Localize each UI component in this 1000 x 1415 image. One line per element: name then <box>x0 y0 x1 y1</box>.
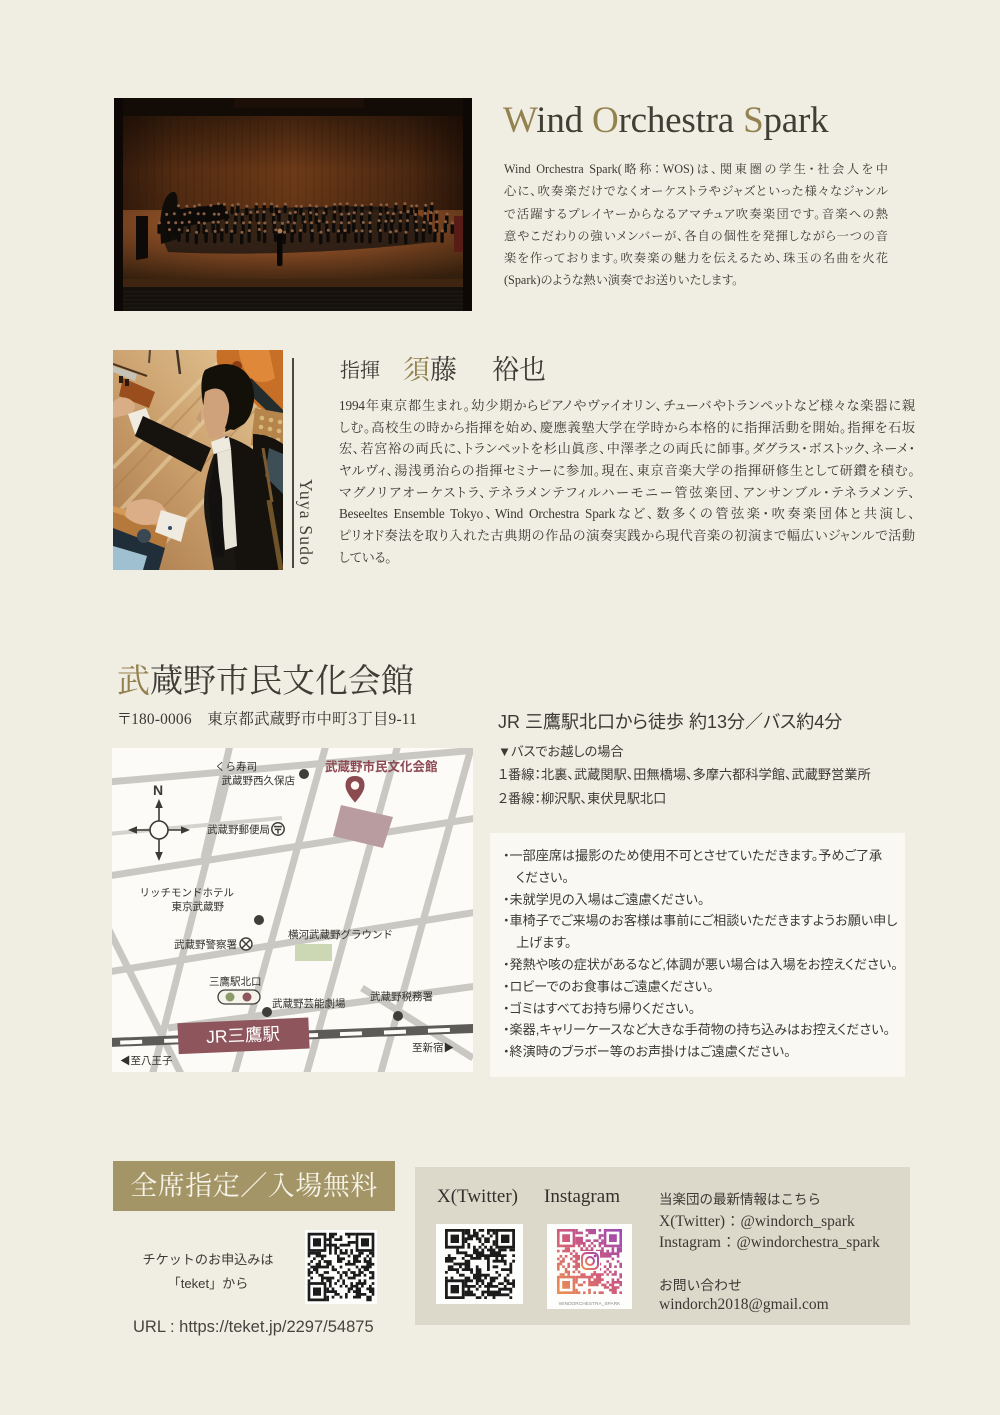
svg-text:WINDORCHESTRA_SPARK: WINDORCHESTRA_SPARK <box>559 1301 621 1307</box>
svg-text:リッチモンドホテル: リッチモンドホテル <box>140 887 235 899</box>
svg-text:横河武蔵野グラウンド: 横河武蔵野グラウンド <box>288 928 393 941</box>
svg-text:◀至八王子: ◀至八王子 <box>120 1055 173 1067</box>
svg-text:くら寿司: くら寿司 <box>215 760 257 773</box>
svg-text:東京武蔵野: 東京武蔵野 <box>172 900 225 913</box>
svg-text:武蔵野警察署: 武蔵野警察署 <box>174 938 237 951</box>
svg-text:JR三鷹駅: JR三鷹駅 <box>206 1024 281 1047</box>
svg-text:武蔵野郵便局: 武蔵野郵便局 <box>207 823 270 836</box>
svg-text:武蔵野芸能劇場: 武蔵野芸能劇場 <box>272 997 346 1010</box>
svg-text:至新宿▶: 至新宿▶ <box>412 1041 454 1054</box>
svg-text:三鷹駅北口: 三鷹駅北口 <box>209 975 262 988</box>
svg-text:武蔵野市民文化会館: 武蔵野市民文化会館 <box>325 759 438 774</box>
svg-text:武蔵野税務署: 武蔵野税務署 <box>370 990 433 1003</box>
svg-text:武蔵野西久保店: 武蔵野西久保店 <box>222 774 296 787</box>
svg-text:N: N <box>153 782 163 798</box>
